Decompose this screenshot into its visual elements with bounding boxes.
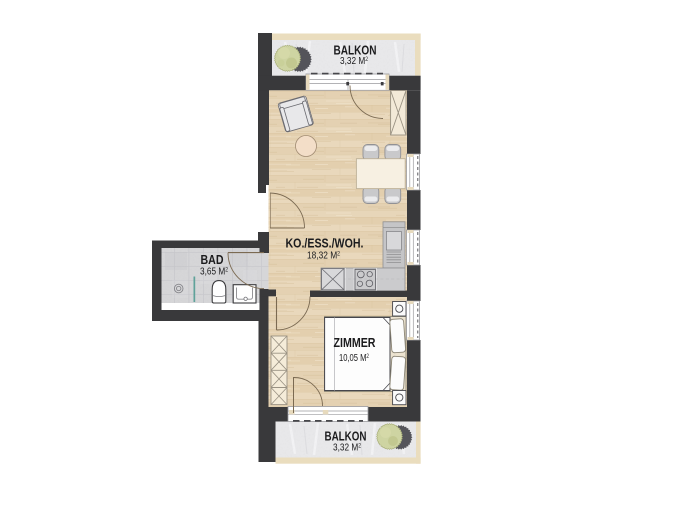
svg-text:3,32 M2: 3,32 M2 [340,56,369,67]
svg-text:18,32 M2: 18,32 M2 [307,251,341,262]
svg-text:BALKON: BALKON [325,429,367,444]
svg-text:3,65 M2: 3,65 M2 [200,267,229,278]
svg-text:3,32 M2: 3,32 M2 [333,443,362,454]
svg-text:BAD: BAD [201,252,224,267]
svg-text:KO./ESS./WOH.: KO./ESS./WOH. [286,236,364,251]
svg-text:ZIMMER: ZIMMER [334,335,376,350]
svg-text:10,05 M2: 10,05 M2 [339,353,370,364]
